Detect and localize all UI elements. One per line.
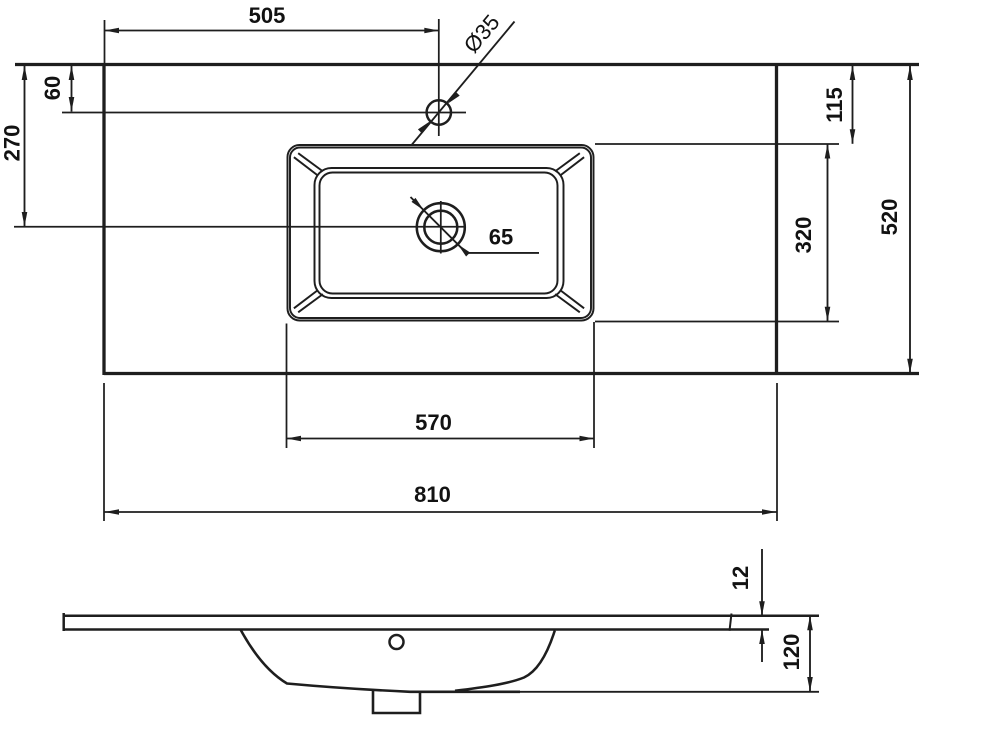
svg-text:570: 570 <box>415 410 452 435</box>
svg-text:65: 65 <box>489 224 513 249</box>
svg-text:320: 320 <box>791 217 816 254</box>
svg-text:520: 520 <box>877 199 902 236</box>
svg-text:60: 60 <box>40 76 65 100</box>
svg-text:120: 120 <box>779 634 804 671</box>
svg-text:12: 12 <box>728 566 753 590</box>
svg-text:505: 505 <box>249 3 286 28</box>
svg-text:115: 115 <box>822 87 847 123</box>
svg-text:810: 810 <box>414 482 451 507</box>
svg-text:270: 270 <box>0 125 25 162</box>
